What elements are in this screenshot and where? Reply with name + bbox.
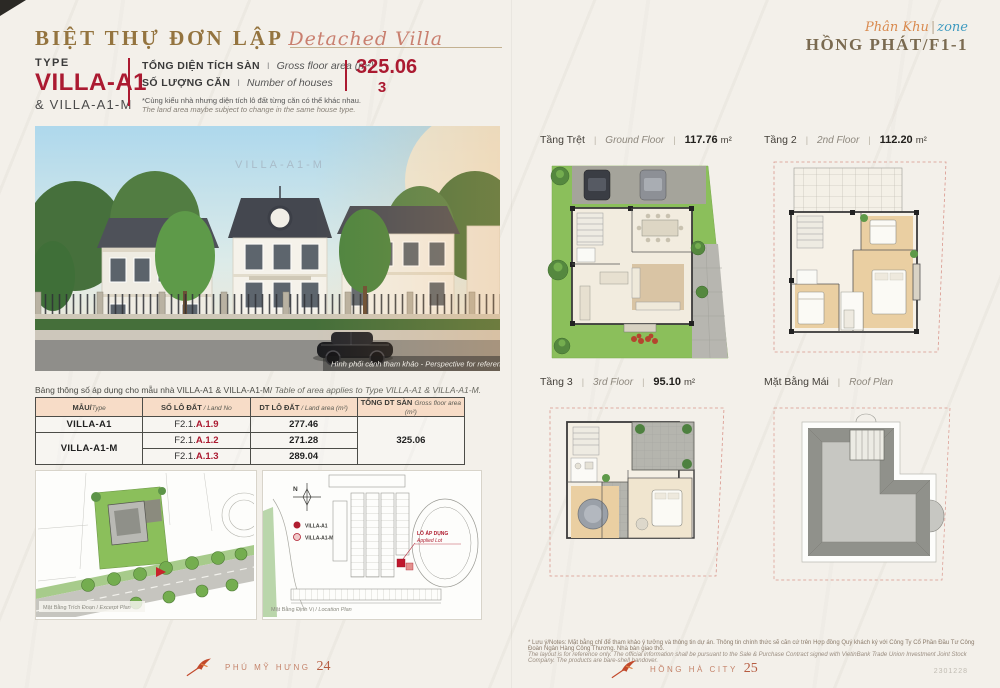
table-header-row: MẪU/Type SỐ LÔ ĐẤT / Land No DT LÔ ĐẤT /… — [36, 398, 465, 417]
cell-area-2: 271.28 — [250, 433, 357, 449]
table-caption-en: Table of area applies to Type VILLA-A1 &… — [272, 385, 481, 395]
gross-label-vi: TỔNG DIỆN TÍCH SÀN — [142, 60, 260, 72]
legend-label-a1: VILLA-A1 — [305, 524, 328, 530]
footer-left-brand-name: PHÚ MỸ HƯNG — [225, 663, 310, 672]
plan-second-en: 2nd Floor — [817, 135, 859, 146]
excerpt-caption-vi: Mặt Bằng Trích Đoạn / — [43, 604, 98, 611]
page-fold-line — [511, 0, 512, 688]
svg-text:Mặt Bằng Định Vị / Location Pl: Mặt Bằng Định Vị / Location Plan — [271, 606, 352, 613]
plan-second-header: Tầng 2 | 2nd Floor | 112.20 m² — [764, 134, 969, 146]
type-sub: & VILLA-A1-M — [35, 97, 147, 112]
plan-ground-area: 117.76 m² — [685, 134, 732, 146]
count-label-vi: SỐ LƯỢNG CĂN — [142, 77, 230, 89]
area-table: MẪU/Type SỐ LÔ ĐẤT / Land No DT LÔ ĐẤT /… — [35, 397, 465, 465]
corner-code: 2301228 — [934, 668, 968, 675]
cell-area-1: 277.46 — [250, 417, 357, 433]
spec-divider-2 — [345, 60, 347, 91]
footer-right-brand: HỒNG HÀ CITY 25 — [610, 658, 758, 680]
zone-name: HỒNG PHÁT/F1-1 — [806, 35, 968, 55]
photo-watermark: VILLA-A1-M — [235, 159, 325, 171]
gross-value: 325.06 — [356, 56, 408, 79]
table-row: VILLA-A1 F2.1.A.1.9 277.46 325.06 — [36, 417, 465, 433]
bird-logo-icon — [185, 656, 219, 678]
table-caption-vi: Bảng thông số áp dụng cho mẫu nhà VILLA-… — [35, 385, 272, 395]
cell-type-a1m: VILLA-A1-M — [36, 433, 143, 465]
col-lot: SỐ LÔ ĐẤT / Land No — [143, 398, 250, 417]
plan-ground-en: Ground Floor — [605, 135, 664, 146]
cell-lot-2: F2.1.A.1.2 — [143, 433, 250, 449]
type-label: TYPE — [35, 57, 147, 69]
col-gross-area: TỔNG DT SÀN Gross floor area (m²) — [357, 398, 464, 417]
excerpt-plan: Mặt Bằng Trích Đoạn / Excerpt Plan — [35, 470, 257, 620]
cell-type-a1: VILLA-A1 — [36, 417, 143, 433]
plan-second-drawing — [764, 152, 964, 364]
footer-left-page-number: 24 — [316, 659, 330, 675]
plan-card-roof: Mặt Bằng Mái | Roof Plan — [764, 376, 969, 617]
plan-card-third: Tầng 3 | 3rd Floor | 95.10 m² — [540, 376, 752, 617]
page-title-vi: BIỆT THỰ ĐƠN LẬP — [35, 26, 284, 50]
plan-roof-en: Roof Plan — [849, 377, 893, 388]
plan-ground-header: Tầng Trệt | Ground Floor | 117.76 m² — [540, 134, 752, 146]
villa-perspective-image: VILLA-A1-M Hình phối cảnh tham khảo - Pe… — [35, 126, 500, 371]
applied-lot-a1 — [397, 559, 405, 567]
zone-script-sep: | — [929, 20, 937, 35]
excerpt-caption-en: Excerpt Plan — [98, 605, 131, 611]
type-value: VILLA-A1 — [35, 69, 147, 97]
legend-label-a1m: VILLA-A1-M — [305, 536, 333, 542]
cell-total: 325.06 — [357, 417, 464, 465]
plan-third-vi: Tầng 3 — [540, 376, 573, 388]
plan-third-en: 3rd Floor — [593, 377, 633, 388]
type-block: TYPE VILLA-A1 & VILLA-A1-M — [35, 57, 147, 112]
plan-roof-drawing — [764, 394, 964, 612]
plan-roof-header: Mặt Bằng Mái | Roof Plan — [764, 376, 969, 388]
compass-n: N — [293, 486, 298, 493]
zone-script-vi: Phân Khu — [865, 20, 929, 35]
cell-lot-1: F2.1.A.1.9 — [143, 417, 250, 433]
cell-area-3: 289.04 — [250, 449, 357, 465]
table-caption: Bảng thông số áp dụng cho mẫu nhà VILLA-… — [35, 385, 481, 395]
cell-lot-3: F2.1.A.1.3 — [143, 449, 250, 465]
legend-dot-a1 — [294, 522, 301, 529]
location-caption-en: Location Plan — [317, 607, 352, 613]
spec-note-en: The land area maybe subject to change in… — [142, 105, 374, 114]
zone-script: Phân Khu|zone — [806, 20, 968, 35]
title-underline — [290, 47, 502, 48]
spec-note-vi: *Cùng kiểu nhà nhưng diện tích lô đất từ… — [142, 96, 374, 105]
legend-dot-a1m — [294, 534, 301, 541]
footer-left-brand: PHÚ MỸ HƯNG 24 — [185, 656, 330, 678]
plan-roof-vi: Mặt Bằng Mái — [764, 376, 829, 388]
zone-block: Phân Khu|zone HỒNG PHÁT/F1-1 — [806, 20, 968, 55]
plan-third-header: Tầng 3 | 3rd Floor | 95.10 m² — [540, 376, 752, 388]
bird-logo-icon — [610, 658, 644, 680]
footer-right-page-number: 25 — [744, 661, 758, 677]
plan-third-area: 95.10 m² — [653, 376, 695, 388]
plan-third-drawing — [540, 394, 745, 612]
plan-card-second: Tầng 2 | 2nd Floor | 112.20 m² — [764, 134, 969, 369]
applied-lot-a1m — [406, 563, 413, 570]
count-value: 3 — [356, 79, 408, 96]
col-land-area: DT LÔ ĐẤT / Land area (m²) — [250, 398, 357, 417]
location-caption-vi: Mặt Bằng Định Vị / — [271, 606, 317, 613]
spec-values: 325.06 3 — [356, 56, 408, 96]
plan-ground-vi: Tầng Trệt — [540, 134, 585, 146]
zone-script-en: zone — [937, 20, 968, 35]
brochure-page: BIỆT THỰ ĐƠN LẬP Detached Villa Phân Khu… — [0, 0, 1000, 688]
plan-ground-drawing — [540, 152, 745, 364]
footer-right-brand-name: HỒNG HÀ CITY — [650, 665, 738, 674]
svg-text:Mặt Bằng Trích Đoạn / Excerpt: Mặt Bằng Trích Đoạn / Excerpt Plan — [43, 604, 131, 611]
col-type: MẪU/Type — [36, 398, 143, 417]
spec-rows: TỔNG DIỆN TÍCH SÀN I Gross floor area (m… — [142, 60, 374, 114]
plan-card-ground: Tầng Trệt | Ground Floor | 117.76 m² — [540, 134, 752, 369]
count-sep: I — [237, 78, 240, 88]
applied-lot-label-vi: LÔ ÁP DỤNG — [417, 529, 448, 537]
spec-divider-1 — [128, 58, 130, 106]
gross-sep: I — [267, 61, 270, 71]
plan-second-vi: Tầng 2 — [764, 134, 797, 146]
applied-lot-label-en: Applied Lot — [416, 538, 443, 544]
footer-note-vi: * Lưu ý/Notes: Mặt bằng chỉ để tham khảo… — [528, 640, 986, 652]
spec-note: *Cùng kiểu nhà nhưng diện tích lô đất từ… — [142, 96, 374, 114]
house-count-row: SỐ LƯỢNG CĂN I Number of houses — [142, 77, 374, 89]
count-label-en: Number of houses — [247, 77, 333, 89]
location-plan: N VILLA-A1 VILLA-A1-M LÔ ÁP DỤNG — [262, 470, 482, 620]
gross-floor-row: TỔNG DIỆN TÍCH SÀN I Gross floor area (m… — [142, 60, 374, 72]
photo-caption: Hình phối cảnh tham khảo - Perspective f… — [331, 360, 500, 369]
plan-second-area: 112.20 m² — [880, 134, 927, 146]
